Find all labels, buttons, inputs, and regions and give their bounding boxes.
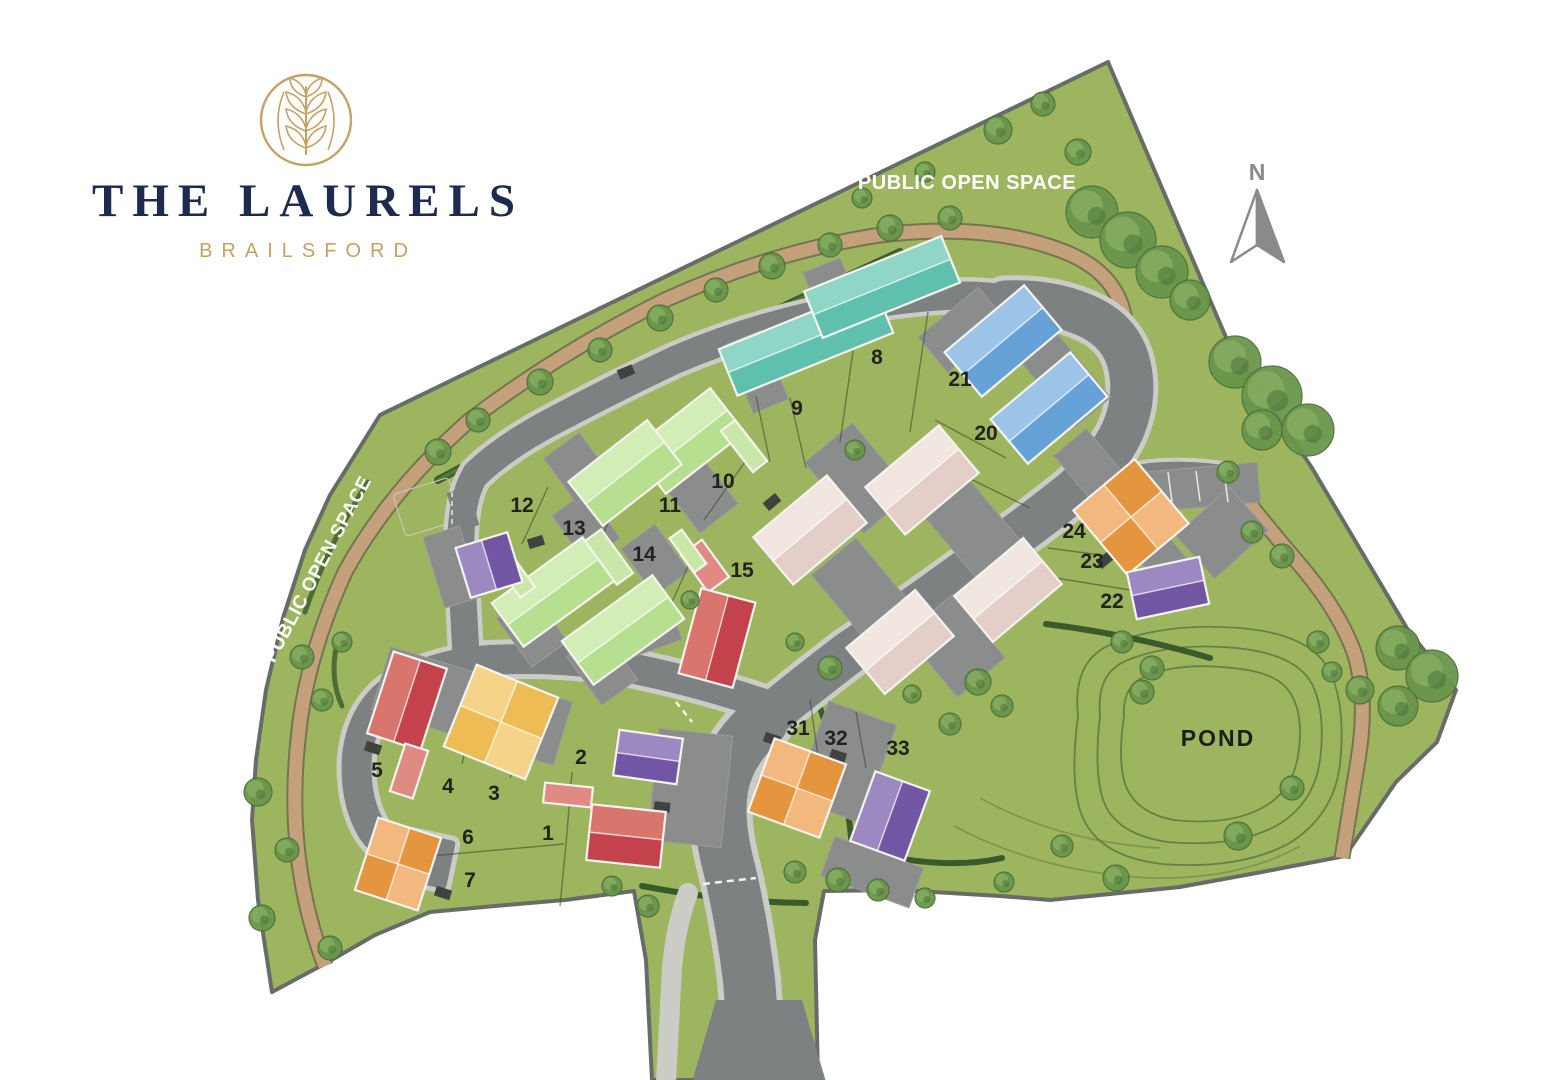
plot-number-10: 10 xyxy=(711,470,734,493)
tree-icon xyxy=(1346,676,1374,704)
tree-icon xyxy=(602,876,622,896)
public-open-space-top-label: PUBLIC OPEN SPACE xyxy=(858,172,1076,194)
plot-number-33: 33 xyxy=(886,737,909,760)
north-label: N xyxy=(1249,159,1266,185)
plot-number-1: 1 xyxy=(542,822,554,845)
tree-icon xyxy=(681,591,699,609)
tree-icon xyxy=(867,879,889,901)
tree-icon xyxy=(1241,521,1263,543)
plot-number-7: 7 xyxy=(464,869,476,892)
plot-number-15: 15 xyxy=(730,559,754,582)
tree-icon xyxy=(1270,544,1294,568)
tree-icon xyxy=(784,861,806,883)
laurel-emblem-icon xyxy=(261,75,351,165)
tree-icon xyxy=(994,872,1014,892)
tree-icon xyxy=(1242,410,1282,450)
tree-icon xyxy=(466,408,490,432)
plot-number-2: 2 xyxy=(575,746,587,769)
plot-number-5: 5 xyxy=(371,759,383,782)
tree-icon xyxy=(938,206,962,230)
pond-label: POND xyxy=(1181,725,1255,751)
plot-number-32: 32 xyxy=(824,727,847,750)
tree-icon xyxy=(1170,280,1210,320)
tree-icon xyxy=(845,440,865,460)
plot-number-6: 6 xyxy=(462,826,474,849)
site-plan-map: 1234567891011121314152021222324313233 PU… xyxy=(0,0,1563,1080)
tree-icon xyxy=(527,369,553,395)
tree-icon xyxy=(786,633,804,651)
tree-icon xyxy=(1280,776,1304,800)
brand-logo: THE LAURELS BRAILSFORD xyxy=(92,75,524,262)
tree-icon xyxy=(877,215,903,241)
tree-icon xyxy=(311,689,333,711)
tree-icon xyxy=(588,338,612,362)
tree-icon xyxy=(332,632,352,652)
tree-icon xyxy=(1378,686,1418,726)
house-garage-1 xyxy=(543,783,593,808)
tree-icon xyxy=(704,278,728,302)
tree-icon xyxy=(1103,865,1129,891)
tree-icon xyxy=(647,305,673,331)
plot-number-13: 13 xyxy=(562,517,585,540)
tree-icon xyxy=(275,838,299,862)
tree-icon xyxy=(991,695,1013,717)
plot-number-9: 9 xyxy=(791,397,803,420)
tree-icon xyxy=(1224,822,1252,850)
tree-icon xyxy=(425,439,451,465)
tree-icon xyxy=(1217,461,1239,483)
tree-icon xyxy=(1065,139,1091,165)
house-house-2 xyxy=(613,730,683,784)
tree-icon xyxy=(1031,92,1055,116)
tree-icon xyxy=(1051,835,1073,857)
tree-icon xyxy=(637,895,659,917)
tree-icon xyxy=(1282,404,1334,456)
tree-icon xyxy=(1140,656,1164,680)
plot-number-23: 23 xyxy=(1080,550,1103,573)
brand-title: THE LAURELS xyxy=(92,175,524,227)
plot-number-31: 31 xyxy=(786,717,810,740)
tree-icon xyxy=(318,936,342,960)
plot-number-24: 24 xyxy=(1062,520,1086,543)
plot-number-12: 12 xyxy=(510,494,533,517)
tree-icon xyxy=(984,116,1012,144)
north-arrow-left-half xyxy=(1231,190,1257,262)
tree-icon xyxy=(818,656,842,680)
plot-number-14: 14 xyxy=(632,543,656,566)
tree-icon xyxy=(1130,680,1154,704)
tree-icon xyxy=(290,645,314,669)
north-arrow-right-half xyxy=(1257,190,1284,262)
tree-icon xyxy=(1111,631,1133,653)
tree-icon xyxy=(903,685,921,703)
tree-icon xyxy=(826,868,850,892)
tree-icon xyxy=(915,888,935,908)
house-house-1 xyxy=(586,804,665,867)
plot-number-21: 21 xyxy=(948,368,972,391)
tree-icon xyxy=(759,253,785,279)
tree-icon xyxy=(965,669,991,695)
site-plan-page: 1234567891011121314152021222324313233 PU… xyxy=(0,0,1563,1080)
tree-icon xyxy=(818,233,842,257)
plot-number-3: 3 xyxy=(488,782,500,805)
tree-icon xyxy=(1322,662,1342,682)
tree-icon xyxy=(1307,631,1329,653)
plot-number-20: 20 xyxy=(974,422,997,445)
plot-number-4: 4 xyxy=(442,775,454,798)
north-arrow: N xyxy=(1231,159,1284,262)
plot-number-11: 11 xyxy=(659,494,682,517)
tree-icon xyxy=(249,905,275,931)
tree-icon xyxy=(939,713,961,735)
plot-number-22: 22 xyxy=(1100,590,1123,613)
plot-number-8: 8 xyxy=(871,346,883,369)
tree-icon xyxy=(244,778,272,806)
brand-subtitle: BRAILSFORD xyxy=(199,240,417,262)
